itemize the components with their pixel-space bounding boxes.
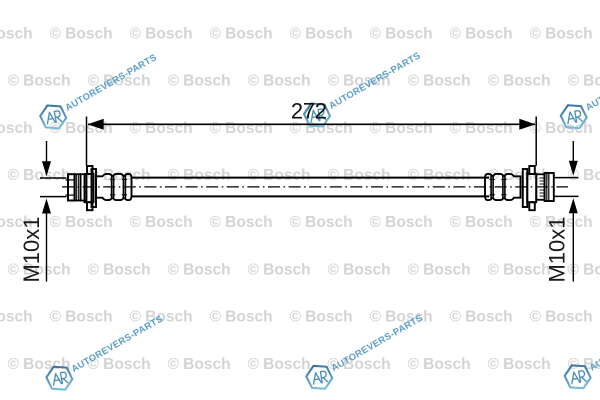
svg-text:© Bosch: © Bosch [529,309,592,326]
svg-text:© Bosch: © Bosch [167,73,230,90]
svg-text:© Bosch: © Bosch [129,25,192,42]
svg-text:© Bosch: © Bosch [167,167,230,184]
svg-text:© Bosch: © Bosch [529,25,592,42]
svg-text:© Bosch: © Bosch [449,309,512,326]
svg-text:© Bosch: © Bosch [0,25,33,42]
svg-text:© Bosch: © Bosch [247,356,310,373]
svg-text:© Bosch: © Bosch [369,120,432,137]
svg-text:© Bosch: © Bosch [567,73,600,90]
svg-text:© Bosch: © Bosch [167,261,230,278]
svg-text:272: 272 [291,99,327,124]
svg-text:© Bosch: © Bosch [289,309,352,326]
svg-text:© Bosch: © Bosch [49,309,112,326]
svg-text:© Bosch: © Bosch [209,25,272,42]
svg-text:© Bosch: © Bosch [449,120,512,137]
svg-text:© Bosch: © Bosch [129,214,192,231]
svg-text:© Bosch: © Bosch [129,120,192,137]
svg-text:© Bosch: © Bosch [0,120,33,137]
svg-text:© Bosch: © Bosch [49,25,112,42]
svg-text:© Bosch: © Bosch [0,309,33,326]
svg-text:© Bosch: © Bosch [247,167,310,184]
svg-text:© Bosch: © Bosch [407,73,470,90]
svg-text:© Bosch: © Bosch [407,261,470,278]
svg-text:© Bosch: © Bosch [209,214,272,231]
svg-text:© Bosch: © Bosch [87,261,150,278]
svg-text:© Bosch: © Bosch [449,25,512,42]
svg-text:© Bosch: © Bosch [369,214,432,231]
svg-text:M10x1: M10x1 [544,216,569,282]
svg-text:© Bosch: © Bosch [487,356,550,373]
svg-text:© Bosch: © Bosch [167,356,230,373]
svg-text:© Bosch: © Bosch [7,73,70,90]
svg-text:© Bosch: © Bosch [289,214,352,231]
svg-text:© Bosch: © Bosch [209,309,272,326]
svg-text:© Bosch: © Bosch [567,261,600,278]
svg-text:© Bosch: © Bosch [7,167,70,184]
svg-text:© Bosch: © Bosch [407,167,470,184]
svg-text:© Bosch: © Bosch [247,73,310,90]
svg-text:© Bosch: © Bosch [449,214,512,231]
svg-text:© Bosch: © Bosch [289,25,352,42]
svg-text:© Bosch: © Bosch [247,261,310,278]
svg-text:© Bosch: © Bosch [487,261,550,278]
svg-text:M10x1: M10x1 [19,216,44,282]
svg-text:© Bosch: © Bosch [487,73,550,90]
svg-text:© Bosch: © Bosch [369,25,432,42]
svg-text:© Bosch: © Bosch [49,214,112,231]
svg-text:© Bosch: © Bosch [327,167,390,184]
svg-text:© Bosch: © Bosch [327,261,390,278]
svg-text:© Bosch: © Bosch [7,356,70,373]
svg-text:© Bosch: © Bosch [407,356,470,373]
svg-text:© Bosch: © Bosch [209,120,272,137]
